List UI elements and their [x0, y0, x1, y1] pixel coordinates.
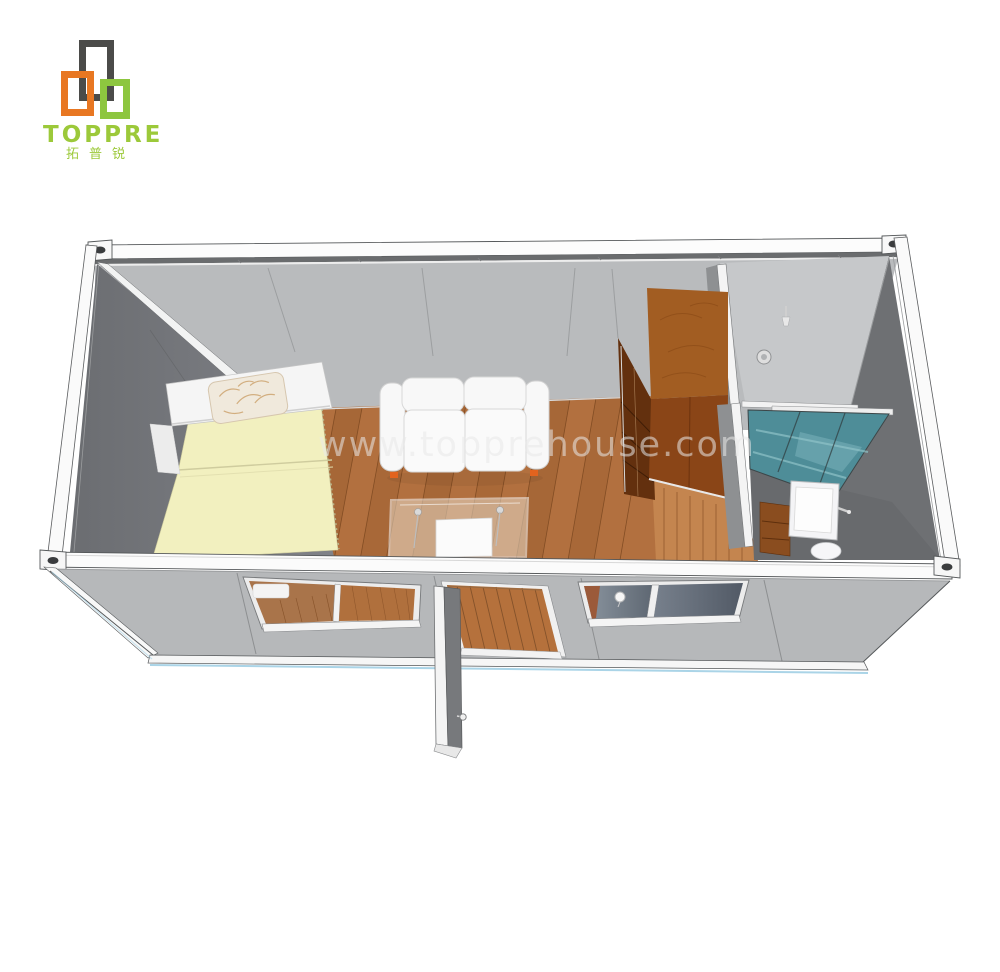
- table-base: [436, 518, 492, 557]
- window-left: [243, 577, 421, 632]
- coffee-table: [389, 498, 528, 558]
- window-right-pane-2: [654, 583, 743, 617]
- product-page: www.topprehouse.com TOPPRE 拓普锐: [0, 0, 1000, 972]
- front-wall: [44, 567, 950, 673]
- interior-light-icon: [615, 592, 625, 602]
- logo-square-orange: [65, 75, 91, 113]
- window-left-pane-2: [339, 585, 415, 621]
- sofa-foot: [530, 470, 538, 476]
- door-knob: [460, 714, 466, 720]
- watermark-text: www.topprehouse.com: [318, 425, 756, 465]
- window-right: [578, 580, 749, 627]
- container-house-render: www.topprehouse.com TOPPRE 拓普锐: [0, 0, 1000, 972]
- sofa-foot: [390, 472, 398, 478]
- toilet: [811, 543, 841, 560]
- vanity-cabinet: [760, 502, 790, 556]
- brand-name-cn: 拓普锐: [66, 147, 135, 162]
- ceiling-downlight-icon: [757, 350, 771, 364]
- logo-square-green: [104, 83, 127, 116]
- brand-name: TOPPRE: [43, 122, 163, 148]
- brand-logo: TOPPRE 拓普锐: [43, 44, 163, 163]
